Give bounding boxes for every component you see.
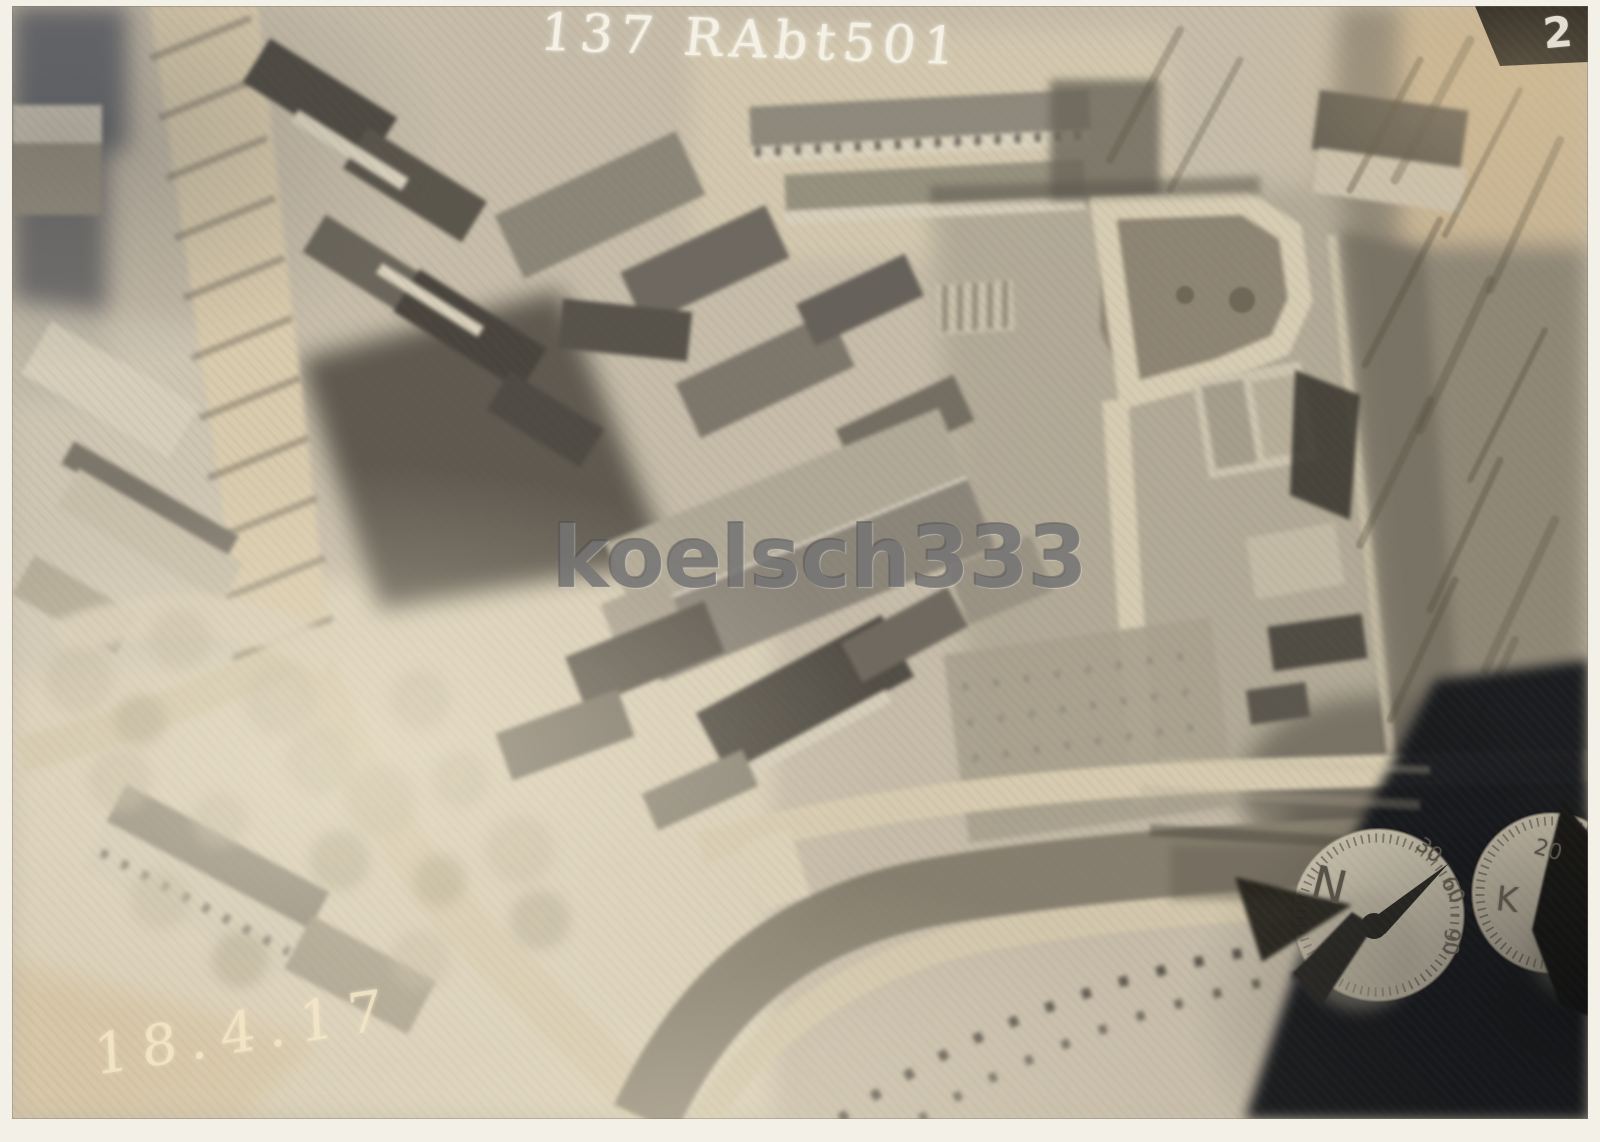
scanned-aerial-photo: 137 RAbt501 koelsch333 18.4.17 2 N 30 60… (0, 0, 1600, 1142)
aerial-photo-artwork (0, 0, 1600, 1142)
